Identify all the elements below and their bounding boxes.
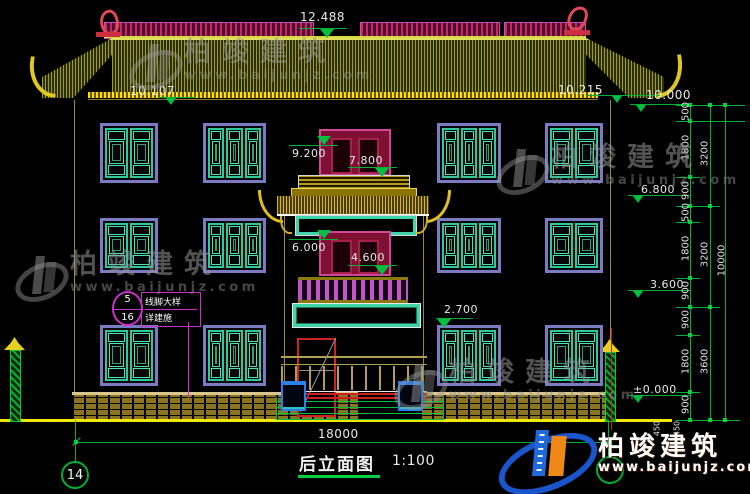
window <box>437 325 501 386</box>
dim-porch-2700: 2.700 <box>444 303 478 316</box>
cad-elevation-drawing: 5 16 线脚大样 详建施 12.488 10.107 10.215 10.00… <box>0 0 750 494</box>
dim-node <box>708 204 712 208</box>
dim-left-eave-level: 10.107 <box>130 84 175 98</box>
window <box>545 325 603 386</box>
title-underline <box>298 475 380 478</box>
dim-tower-7800: 7.800 <box>349 154 383 167</box>
level-triangle <box>633 291 643 298</box>
dim-node <box>723 103 727 107</box>
brand-logo-url: www.baijunjz.com <box>598 460 750 475</box>
gate-pillar-left <box>10 350 21 422</box>
drawing-title: 后立面图 <box>299 450 375 475</box>
dim-chain-value: 900 <box>681 298 692 342</box>
dragon-finial-left-icon <box>94 8 124 38</box>
tower-bracket-left <box>280 216 292 234</box>
dim-chain-value: 1800 <box>681 340 692 384</box>
dim-tower-9200: 9.200 <box>292 147 326 160</box>
tower-balcony-railing <box>298 277 408 303</box>
dim-tower-4600: 4.600 <box>351 251 385 264</box>
detail-callout-note: 线脚大样 详建施 <box>141 292 201 327</box>
dim-tower-6000: 6.000 <box>292 241 326 254</box>
window <box>100 325 158 386</box>
chair-left <box>281 381 306 411</box>
drawing-scale: 1:100 <box>392 453 435 469</box>
chair-right <box>398 381 423 411</box>
detail-callout-bubble: 5 16 <box>112 291 143 326</box>
detail-leader-line <box>188 322 189 398</box>
detail-note-line1: 线脚大样 <box>145 295 197 310</box>
brand-logo-text: 柏竣建筑 <box>598 426 722 463</box>
dim-chain-value: 1800 <box>681 126 692 170</box>
dim-chain-value: 1800 <box>681 227 692 271</box>
window <box>545 123 603 183</box>
dim-tick <box>716 420 740 421</box>
gate-pillar-left-cap <box>4 337 25 350</box>
elevation-label: 3.600 <box>650 278 684 291</box>
window <box>203 218 266 273</box>
detail-note-line2: 详建施 <box>145 310 197 324</box>
dim-node <box>708 103 712 107</box>
dim-node <box>723 418 727 422</box>
brick-base-right <box>420 392 610 422</box>
wall-left <box>74 100 75 420</box>
eave-hook-left <box>26 56 61 98</box>
dim-ridge-level: 12.488 <box>300 10 345 24</box>
tower-plaque-lower <box>293 304 420 327</box>
dragon-finial-right-icon <box>560 4 592 36</box>
window <box>203 325 266 386</box>
dim-node <box>708 305 712 309</box>
dim-overall-width: 18000 <box>318 427 359 441</box>
watermark-logo-icon <box>14 250 70 308</box>
leader-line-red <box>611 328 612 430</box>
detail-number: 5 <box>114 294 141 305</box>
grid-label: 14 <box>67 468 84 483</box>
window <box>100 123 158 183</box>
dim-chain-value: 3200 <box>700 233 711 277</box>
brand-logo-icon <box>494 428 598 490</box>
dim-chain-value: 3600 <box>700 340 711 384</box>
dim-chain-value: 3200 <box>700 132 711 176</box>
grid-bubble-left: 14 <box>61 461 89 489</box>
level-triangle <box>633 396 643 403</box>
tower-roof-tiles <box>277 196 429 216</box>
elevation-label: ±0.000 <box>633 383 677 396</box>
dim-chain-value: 900 <box>681 383 692 427</box>
window <box>545 218 603 273</box>
dim-tick <box>716 105 740 106</box>
roof-tiles <box>112 38 586 95</box>
dim-node <box>708 418 712 422</box>
tower-bracket-right <box>416 216 428 234</box>
elevation-label: 6.800 <box>641 183 675 196</box>
watermark-logo-icon <box>495 143 551 201</box>
dim-right-eave-level: 10.215 <box>558 83 603 97</box>
dim-chain-overall: 10000 <box>717 239 728 283</box>
level-triangle <box>633 196 643 203</box>
detail-sheet: 16 <box>114 312 141 323</box>
window <box>203 123 266 183</box>
window <box>100 218 158 273</box>
window <box>437 123 501 183</box>
window <box>437 218 501 273</box>
eave-shadow-line <box>88 99 598 100</box>
